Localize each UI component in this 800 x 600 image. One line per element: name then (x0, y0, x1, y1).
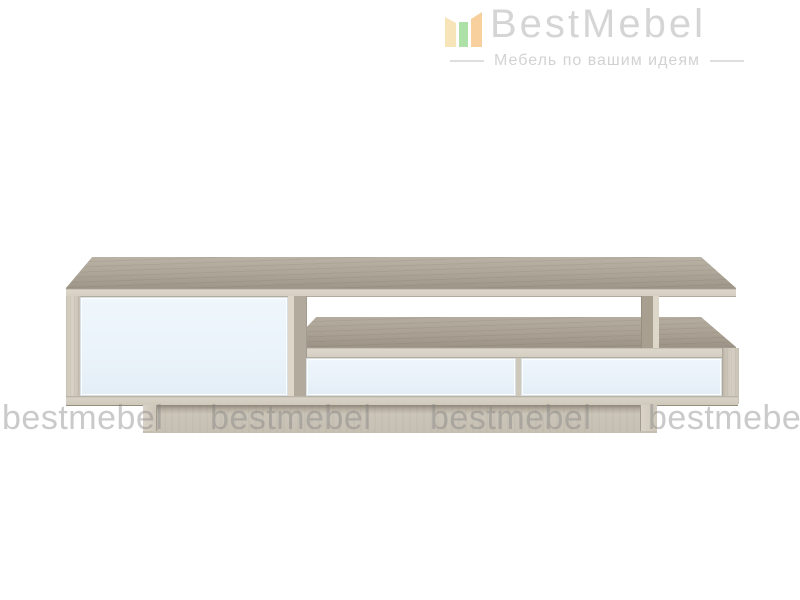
right-drawer-front (521, 358, 722, 396)
plinth-right-foot (640, 405, 657, 431)
plinth-base (143, 405, 657, 433)
plinth-left-foot (143, 405, 157, 431)
lower-shelf-surface (288, 317, 736, 347)
middle-drawer-front (306, 358, 516, 396)
right-vertical-divider (641, 296, 659, 348)
product-image-canvas: BestMebel Мебель по вашим идеям bestmebe… (0, 0, 800, 600)
left-side-panel (66, 296, 81, 404)
left-cabinet-door (80, 297, 288, 396)
top-board-surface (66, 257, 736, 288)
left-vertical-divider (288, 296, 307, 396)
tv-stand-product-render (0, 0, 800, 600)
lower-shelf-front-edge (288, 347, 736, 358)
top-board-front-edge (66, 288, 736, 297)
